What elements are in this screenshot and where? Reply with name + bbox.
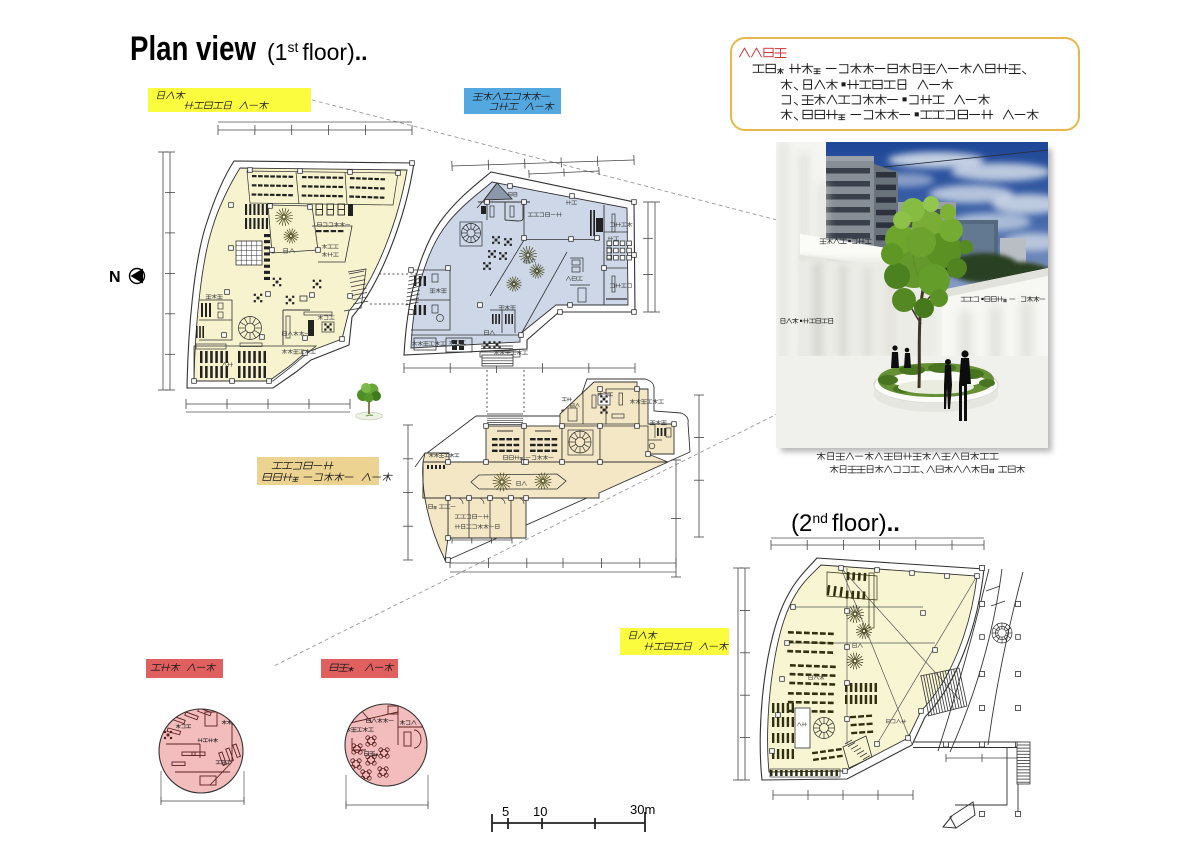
svg-text:5: 5 xyxy=(502,804,509,819)
svg-text:10: 10 xyxy=(533,804,547,819)
svg-text:(1stfloor)..: (1stfloor).. xyxy=(267,39,368,65)
svg-text:N: N xyxy=(109,269,121,286)
svg-text:Plan view: Plan view xyxy=(130,30,256,68)
svg-text:30m: 30m xyxy=(630,802,655,817)
svg-text:(2ndfloor)..: (2ndfloor).. xyxy=(791,510,900,537)
